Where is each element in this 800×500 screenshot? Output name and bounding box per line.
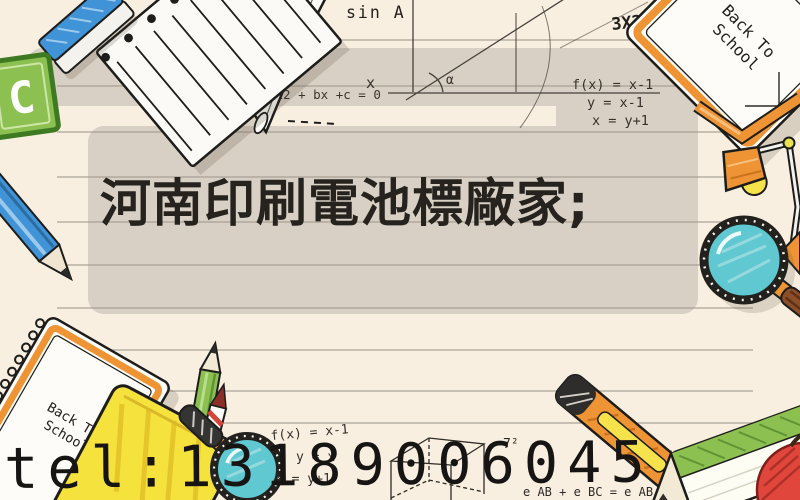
school-doodle-banner: sin A x α ax2 + bx +c = 0 f(x) = x-1 y =… [0,0,800,500]
formula-fx: f(x) = x-1 [572,77,653,93]
sin-label: sin A [346,3,406,22]
blue-pencil-illustration [0,164,81,287]
formula-x: x = y+1 [592,113,649,129]
banner-title: 河南印刷電池標廠家; [100,162,620,236]
decor-layer: sin A x α ax2 + bx +c = 0 f(x) = x-1 y =… [0,0,800,500]
formula-y: y = x-1 [587,95,644,111]
angle-label: α [446,73,454,88]
letter-tile: C [0,54,59,138]
magnifier-illustration [704,220,800,333]
banner-phone: tel:13189006045 [4,428,800,500]
